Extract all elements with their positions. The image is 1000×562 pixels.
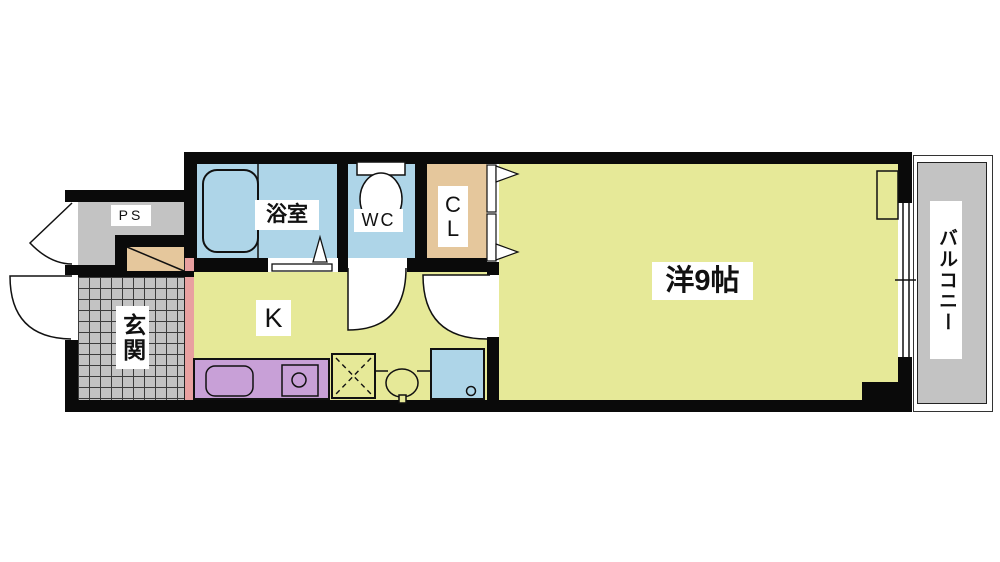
label-genkan: 玄関 bbox=[116, 306, 149, 369]
opening-entrance-door bbox=[65, 275, 78, 340]
label-balcony: バルコニー bbox=[930, 201, 962, 359]
label-kitchen: K bbox=[256, 300, 291, 336]
entrance-door bbox=[10, 276, 72, 339]
shoe-cabinet bbox=[127, 247, 184, 271]
wall-right-pillar-top bbox=[898, 152, 912, 203]
wall-top-ps bbox=[65, 190, 197, 202]
wall-wc-cl-divider bbox=[415, 164, 427, 272]
wall-wet-bottom bbox=[194, 258, 499, 272]
floor-plan: PS 浴室 WC CL 玄関 K 洋9帖 バルコニー bbox=[0, 0, 1000, 562]
label-bathroom: 浴室 bbox=[255, 200, 319, 230]
opening-closet-doors bbox=[487, 164, 499, 262]
wall-corner-step bbox=[862, 382, 912, 412]
wall-ps-inner-h bbox=[115, 235, 197, 247]
opening-room-door bbox=[487, 275, 499, 337]
label-closet: CL bbox=[438, 186, 468, 247]
wall-ps-inner-v bbox=[115, 235, 127, 271]
opening-ps-door bbox=[65, 202, 78, 265]
opening-wc-door bbox=[348, 258, 407, 272]
opening-balcony-window bbox=[898, 203, 912, 357]
label-western-room: 洋9帖 bbox=[652, 262, 753, 300]
wall-genkan-top-b bbox=[115, 271, 194, 277]
washing-machine-pan bbox=[430, 348, 485, 400]
kitchen-counter bbox=[193, 358, 330, 400]
wall-bath-wc-divider bbox=[337, 164, 348, 272]
room-ps-lower bbox=[78, 202, 115, 271]
label-wc: WC bbox=[354, 209, 403, 232]
label-ps: PS bbox=[111, 205, 151, 226]
opening-bath-door bbox=[268, 258, 338, 272]
wall-top-main bbox=[184, 152, 912, 164]
